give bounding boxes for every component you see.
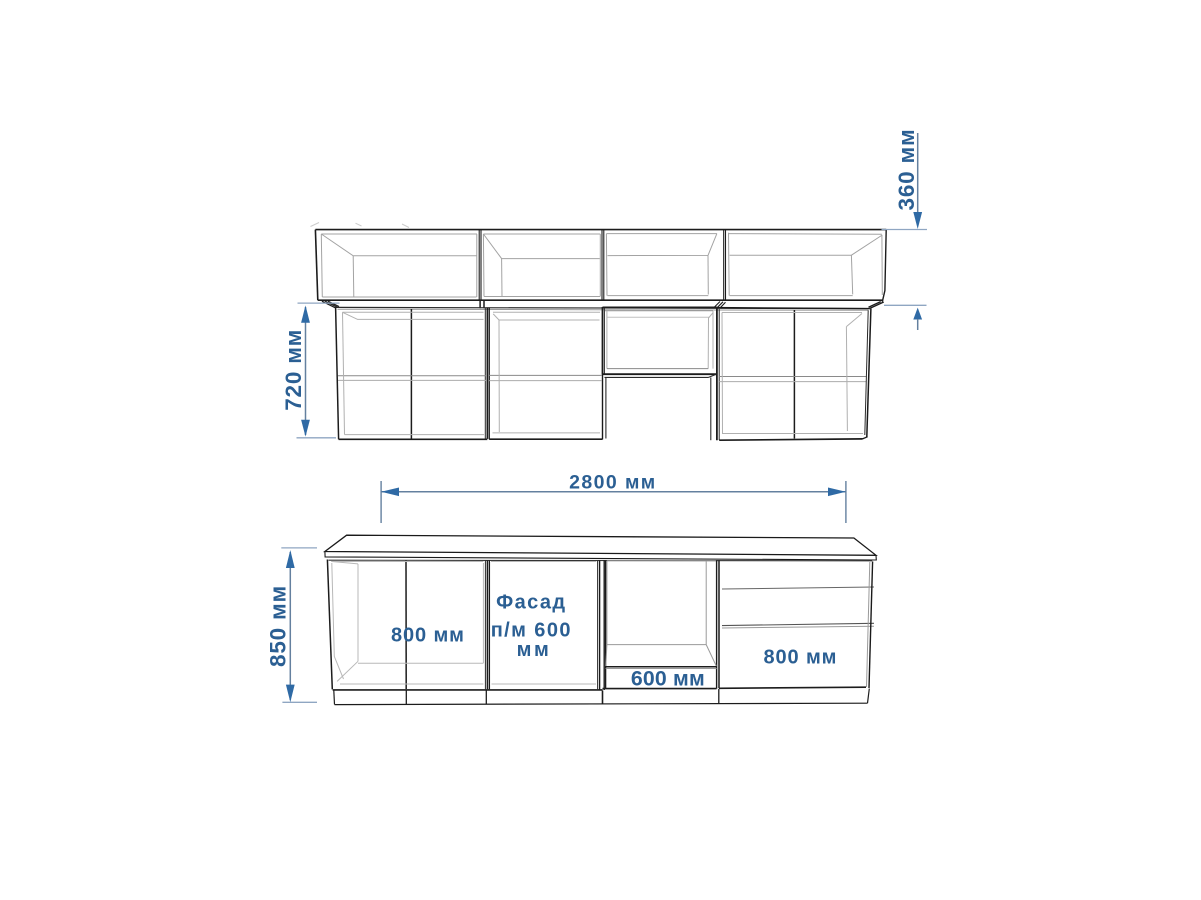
svg-text:800 мм: 800 мм [763,647,837,669]
svg-text:мм: мм [517,639,552,661]
svg-text:360 мм: 360 мм [894,129,919,211]
svg-text:850 мм: 850 мм [266,585,291,667]
svg-text:800 мм: 800 мм [391,625,465,647]
svg-text:п/м 600: п/м 600 [491,620,572,642]
svg-text:720 мм: 720 мм [281,329,306,411]
svg-text:600 мм: 600 мм [631,667,705,691]
svg-text:Фасад: Фасад [496,592,566,614]
svg-text:2800 мм: 2800 мм [569,472,656,494]
